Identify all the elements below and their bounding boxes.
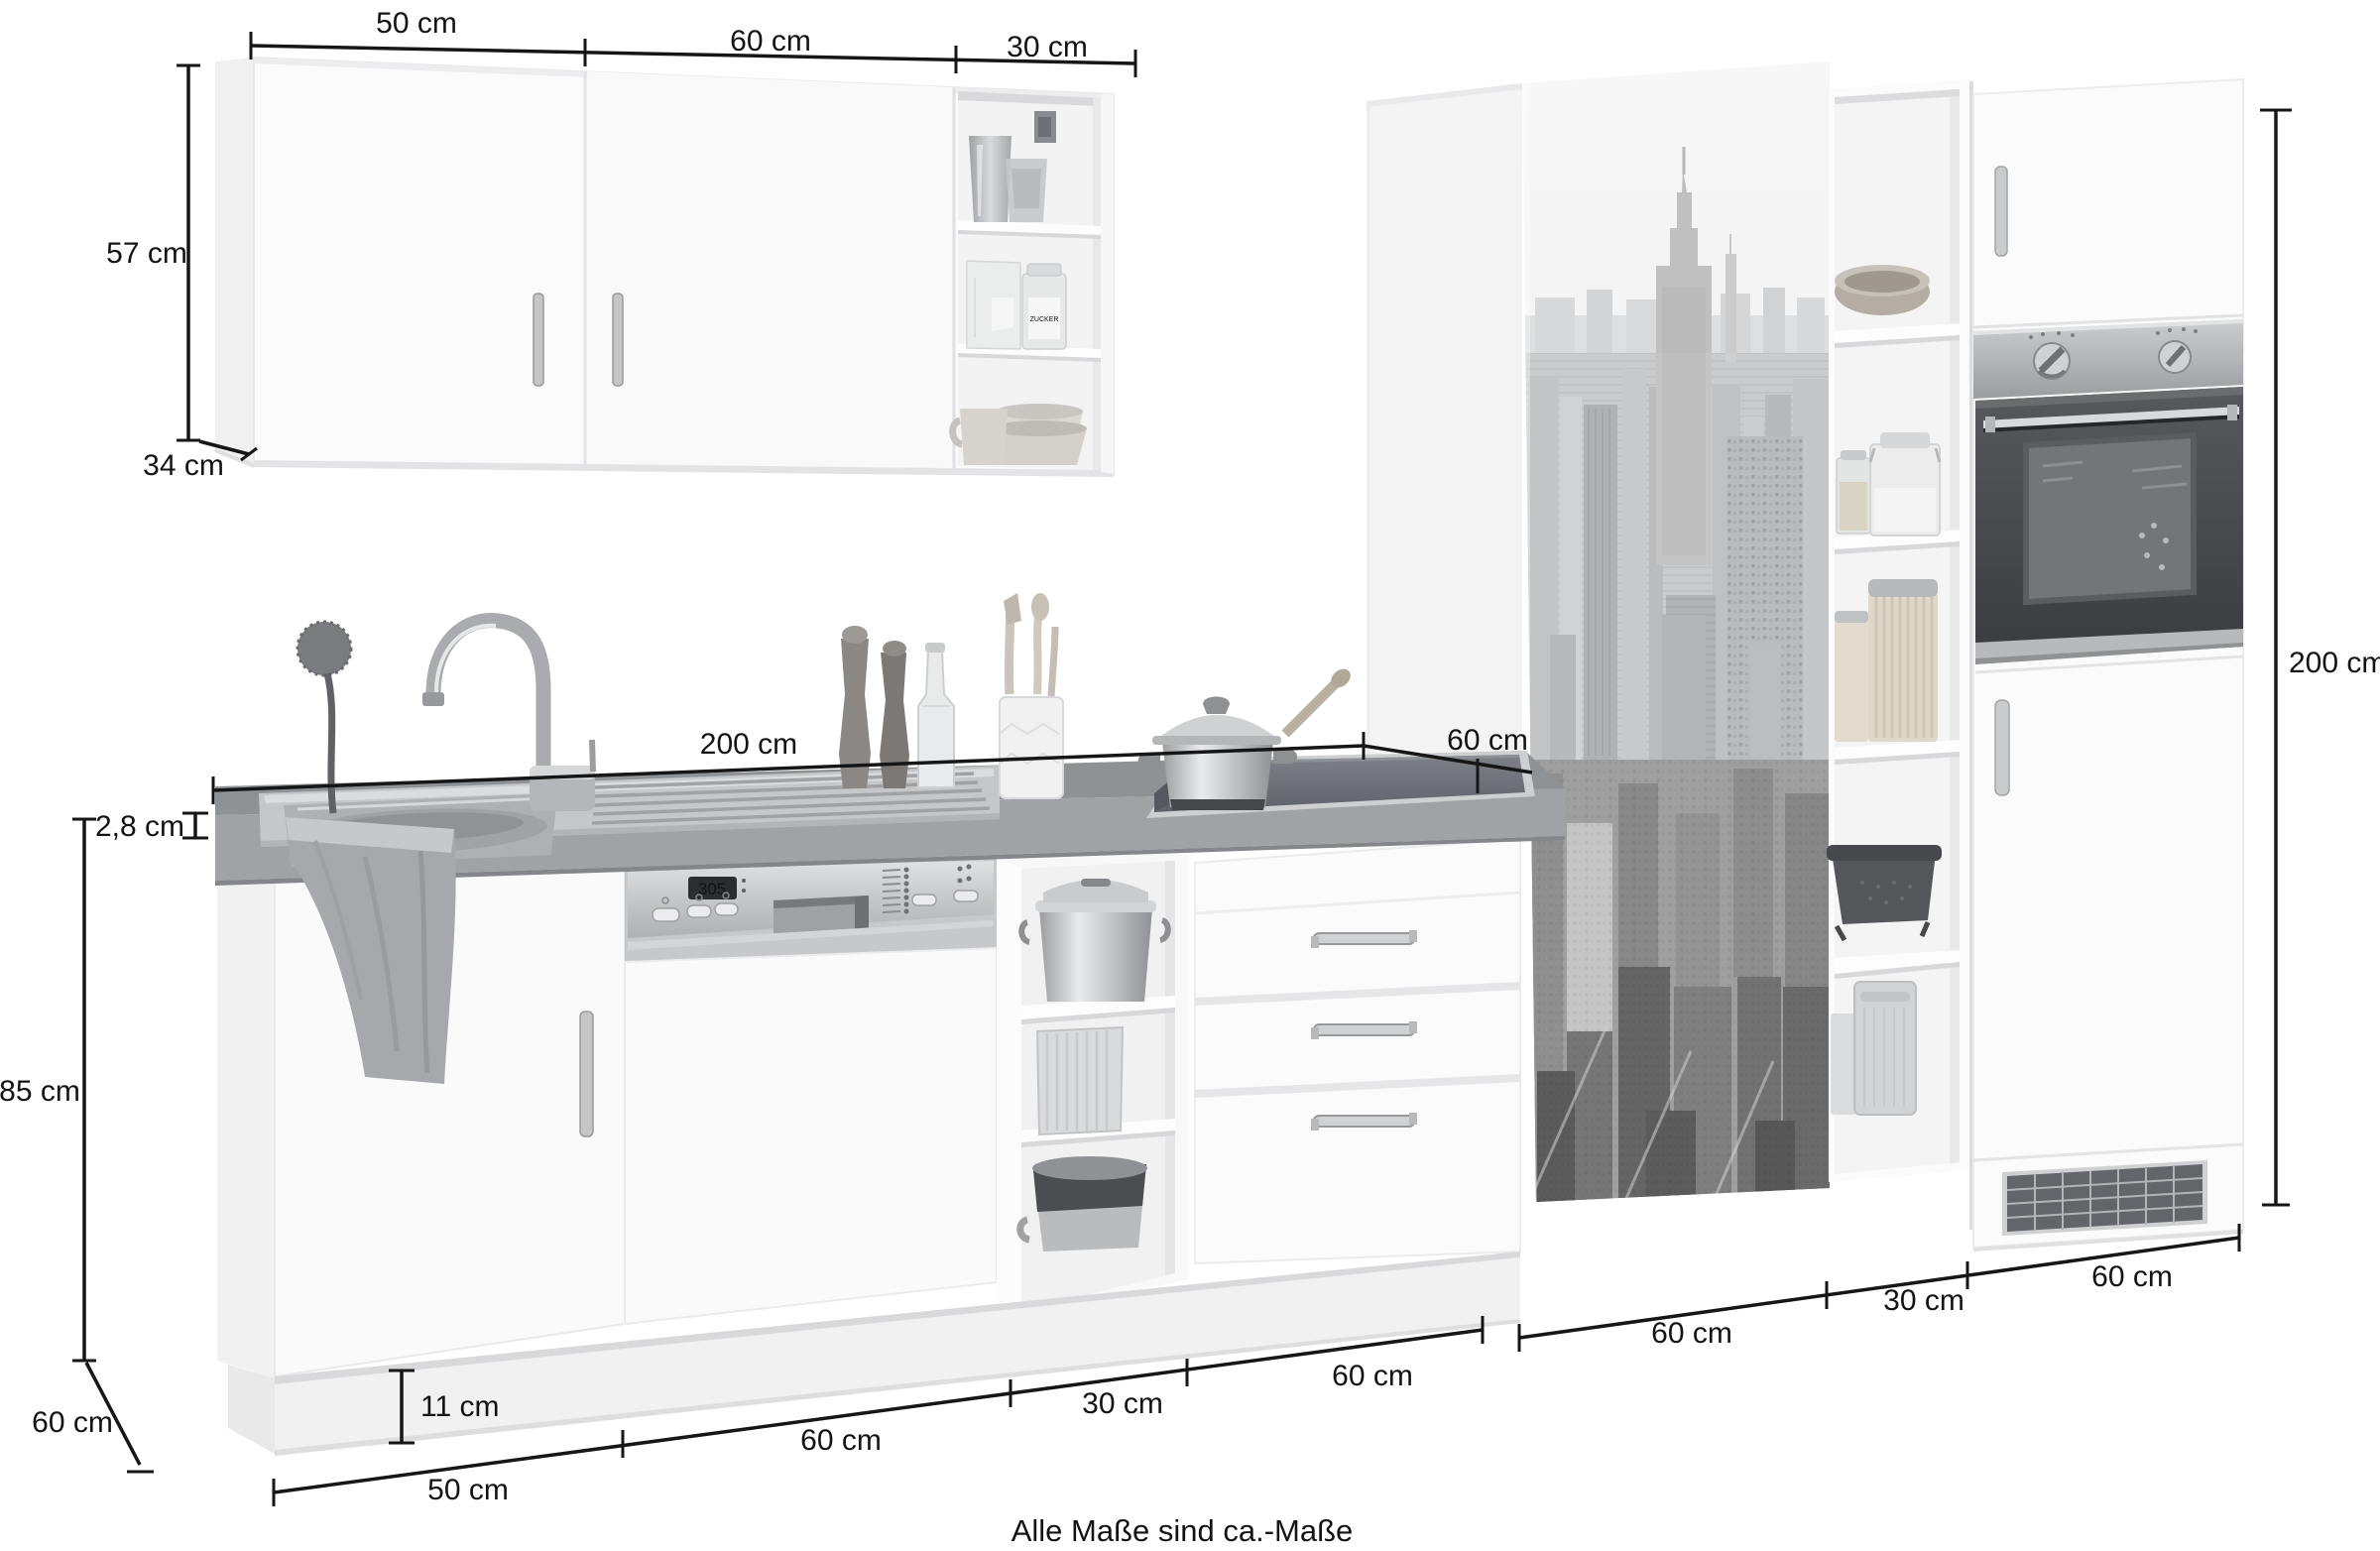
- svg-text:60 cm: 60 cm: [1332, 1360, 1413, 1392]
- svg-text:200 cm: 200 cm: [700, 728, 797, 761]
- svg-text:57 cm: 57 cm: [106, 237, 187, 270]
- svg-text:60 cm: 60 cm: [2091, 1260, 2173, 1293]
- svg-text:30 cm: 30 cm: [1082, 1387, 1163, 1420]
- svg-text:60 cm: 60 cm: [800, 1424, 882, 1457]
- svg-text:60 cm: 60 cm: [32, 1406, 113, 1439]
- svg-text:ZUCKER: ZUCKER: [1030, 316, 1059, 323]
- svg-text:2,8 cm: 2,8 cm: [95, 810, 184, 843]
- svg-text:Alle Maße sind ca.-Maße: Alle Maße sind ca.-Maße: [1011, 1513, 1354, 1548]
- svg-text:200 cm: 200 cm: [2289, 647, 2380, 679]
- svg-text:34 cm: 34 cm: [143, 449, 224, 482]
- svg-text:85 cm: 85 cm: [0, 1075, 80, 1108]
- svg-text:50 cm: 50 cm: [376, 7, 457, 40]
- svg-text:30 cm: 30 cm: [1007, 31, 1088, 63]
- svg-text:30 cm: 30 cm: [1883, 1284, 1964, 1317]
- svg-text:60 cm: 60 cm: [1651, 1317, 1732, 1350]
- svg-text:50 cm: 50 cm: [427, 1474, 509, 1506]
- svg-text:60 cm: 60 cm: [1447, 724, 1528, 757]
- svg-text:11 cm: 11 cm: [420, 1390, 499, 1423]
- svg-text:60 cm: 60 cm: [730, 25, 811, 58]
